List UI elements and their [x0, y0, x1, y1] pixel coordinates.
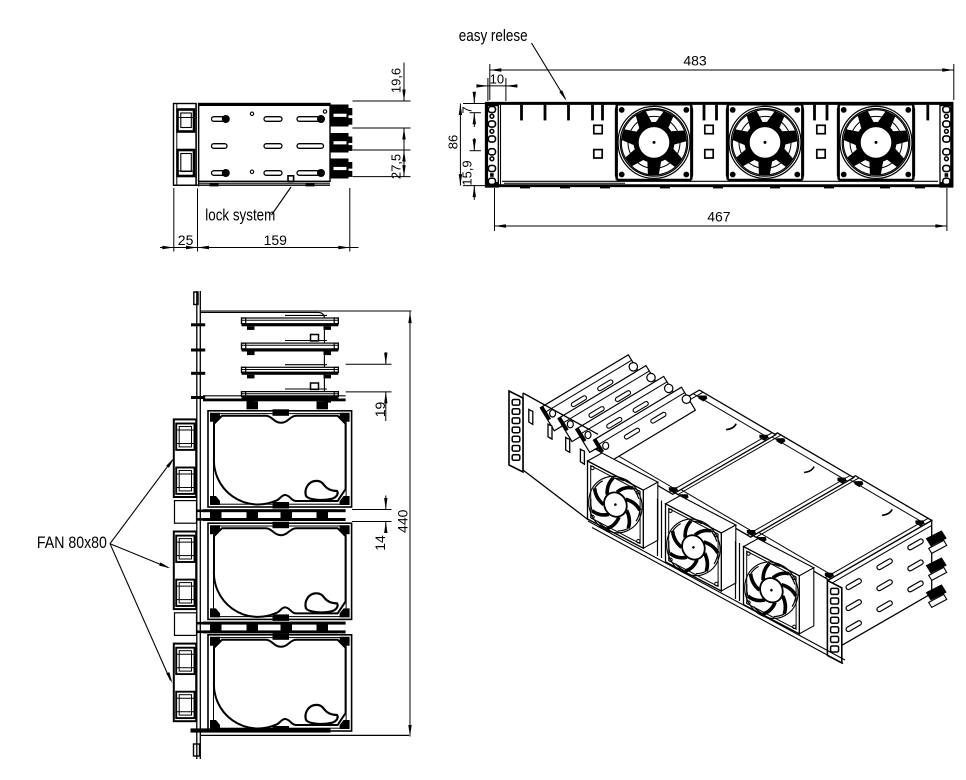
- svg-text:25: 25: [178, 232, 194, 248]
- svg-text:27,5: 27,5: [389, 154, 404, 179]
- svg-text:19,6: 19,6: [389, 68, 404, 93]
- svg-text:440: 440: [394, 509, 410, 533]
- svg-text:FAN 80x80: FAN 80x80: [37, 534, 107, 552]
- svg-text:86: 86: [446, 135, 461, 149]
- svg-text:483: 483: [683, 53, 707, 69]
- svg-text:159: 159: [264, 232, 288, 248]
- svg-text:15,9: 15,9: [460, 160, 475, 185]
- svg-text:10: 10: [490, 72, 504, 87]
- svg-text:lock system: lock system: [205, 207, 275, 225]
- svg-text:467: 467: [707, 209, 731, 225]
- svg-text:14: 14: [372, 535, 388, 551]
- svg-text:7: 7: [460, 106, 475, 113]
- svg-text:19: 19: [372, 402, 388, 418]
- svg-text:easy relese: easy relese: [459, 27, 528, 45]
